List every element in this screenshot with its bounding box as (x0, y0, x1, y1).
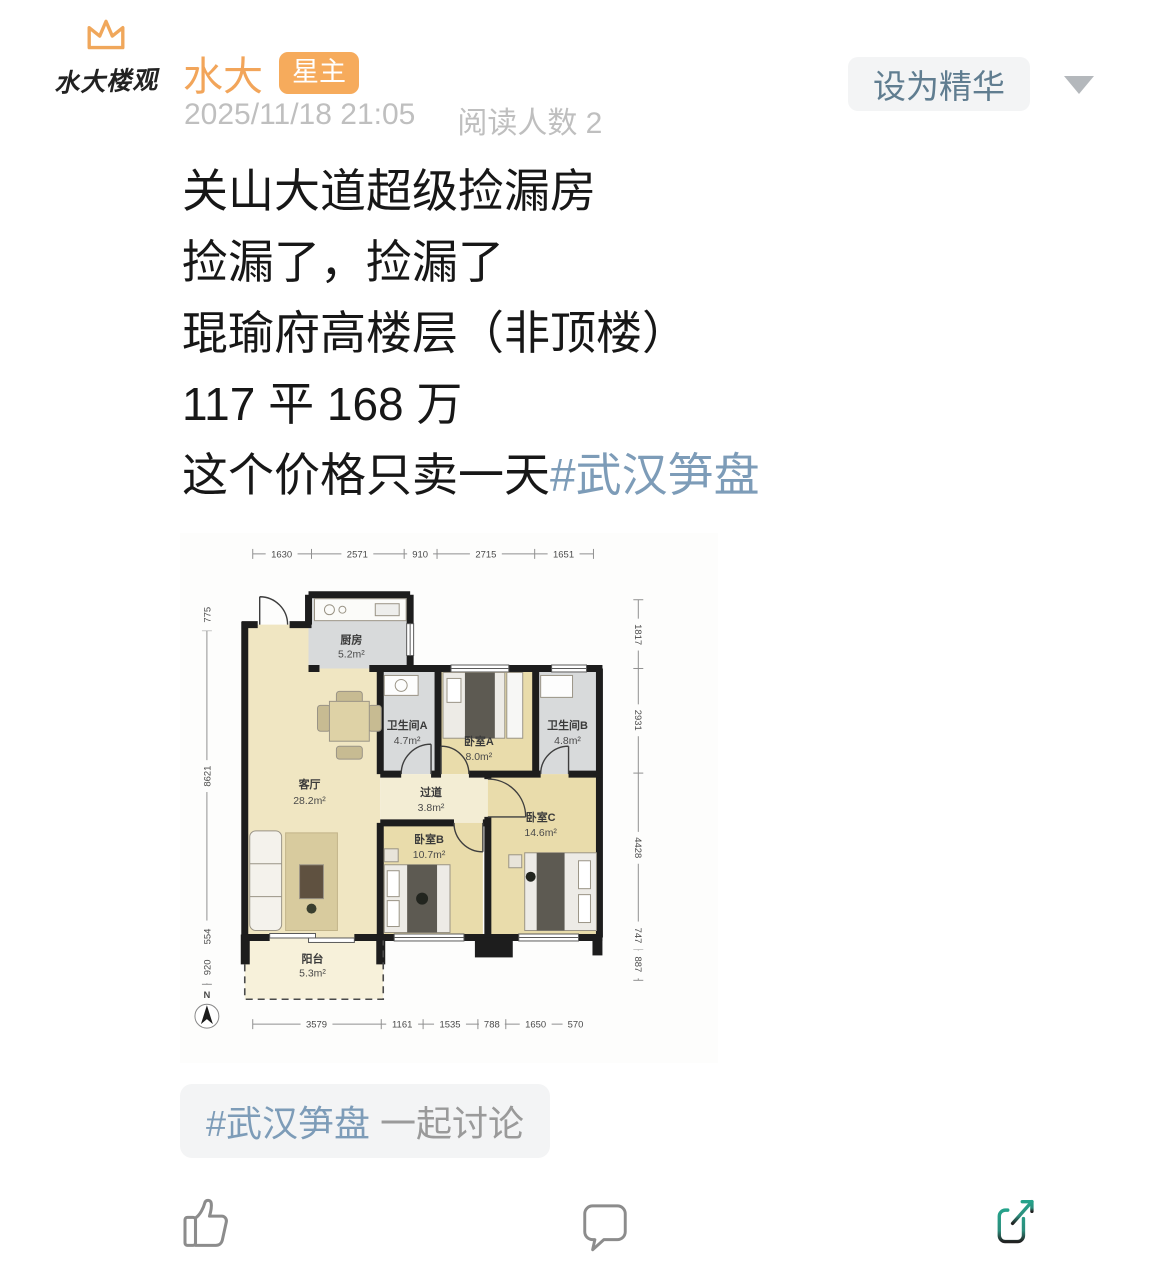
room-area-living: 28.2m² (293, 796, 326, 807)
author-badge: 星主 (279, 52, 359, 94)
share-arrow-icon (986, 1192, 1044, 1250)
dim-left-0: 775 (202, 607, 213, 623)
author-name[interactable]: 水大 (183, 44, 263, 102)
dim-bottom-0: 3579 (306, 1020, 327, 1031)
hashtag-discuss-pill[interactable]: #武汉笋盘 一起讨论 (180, 1084, 550, 1158)
dim-bottom-5: 570 (568, 1020, 584, 1031)
chevron-down-icon[interactable] (1064, 76, 1094, 94)
pill-hashtag[interactable]: #武汉笋盘 (206, 1095, 370, 1147)
room-area-balcony: 5.3m² (299, 968, 326, 979)
dim-right-2: 4428 (632, 837, 643, 858)
post-line-text: 这个价格只卖一天 (182, 449, 550, 501)
avatar[interactable]: 水大楼观 (50, 14, 162, 122)
set-featured-button[interactable]: 设为精华 (848, 57, 1030, 111)
post-line: 琨瑜府高楼层（非顶楼） (182, 298, 1042, 369)
room-label-bath-a: 卫生间A (387, 718, 428, 732)
dim-bottom-3: 788 (484, 1020, 500, 1031)
dim-right-4: 887 (632, 956, 643, 972)
share-button[interactable] (986, 1192, 1044, 1253)
read-count: 阅读人数 2 (457, 98, 602, 142)
room-area-bed-a: 8.0m² (466, 752, 493, 763)
floorplan-svg: 厨房 5.2m² 卫生间A 4.7m² 卧室A 8.0m² 卫生间B 4.8m²… (180, 533, 718, 1063)
post-line: 117 平 168 万 (182, 369, 1042, 440)
like-button[interactable] (178, 1194, 234, 1253)
dim-top-3: 2715 (475, 549, 496, 560)
room-area-bed-b: 10.7m² (413, 850, 446, 861)
room-area-bath-b: 4.8m² (554, 736, 581, 747)
room-area-corridor: 3.8m² (418, 803, 445, 814)
dim-bottom-4: 1650 (525, 1020, 546, 1031)
post-hashtag-link[interactable]: #武汉笋盘 (550, 449, 760, 501)
room-area-bed-c: 14.6m² (524, 828, 557, 839)
room-label-bed-c: 卧室C (526, 810, 556, 824)
room-area-bath-a: 4.7m² (394, 736, 421, 747)
post-line: 关山大道超级捡漏房 (182, 156, 1042, 227)
room-label-corridor: 过道 (420, 785, 442, 799)
pill-suffix: 一起讨论 (370, 1095, 524, 1147)
comment-button[interactable] (578, 1198, 632, 1255)
room-area-kitchen: 5.2m² (338, 650, 365, 661)
room-label-balcony: 阳台 (302, 951, 324, 965)
dim-top-0: 1630 (271, 549, 292, 560)
room-label-bed-b: 卧室B (414, 832, 444, 846)
north-label: N (203, 990, 210, 1001)
post-meta: 2025/11/18 21:05 阅读人数 2 (184, 98, 602, 142)
comment-bubble-icon (578, 1198, 632, 1252)
dim-left-1: 8621 (202, 766, 213, 787)
dim-bottom-1: 1161 (392, 1020, 412, 1031)
timestamp: 2025/11/18 21:05 (184, 98, 415, 142)
dim-left-2: 554 (202, 929, 213, 945)
dim-right-0: 1817 (632, 624, 643, 645)
dim-right-3: 747 (632, 928, 643, 944)
post-page: 水大楼观 水大 星主 2025/11/18 21:05 阅读人数 2 设为精华 … (0, 0, 1170, 1288)
post-body: 关山大道超级捡漏房 捡漏了，捡漏了 琨瑜府高楼层（非顶楼） 117 平 168 … (182, 156, 1042, 511)
dim-top-1: 2571 (347, 549, 368, 560)
thumbs-up-icon (178, 1194, 234, 1250)
floorplan-image[interactable]: 厨房 5.2m² 卫生间A 4.7m² 卧室A 8.0m² 卫生间B 4.8m²… (180, 533, 718, 1063)
room-label-bath-b: 卫生间B (547, 718, 588, 732)
dim-top-4: 1651 (553, 549, 574, 560)
north-compass-icon: N (195, 990, 219, 1028)
room-label-bed-a: 卧室A (464, 734, 494, 748)
dim-right-1: 2931 (632, 710, 643, 731)
crown-icon (80, 14, 132, 56)
dim-left-3: 920 (202, 959, 213, 975)
post-line: 捡漏了，捡漏了 (182, 227, 1042, 298)
room-label-kitchen: 厨房 (340, 633, 362, 647)
dim-bottom-2: 1535 (439, 1020, 460, 1031)
dim-top-2: 910 (412, 549, 428, 560)
room-label-living: 客厅 (298, 777, 321, 791)
avatar-caption: 水大楼观 (49, 60, 162, 100)
author-row: 水大 星主 (183, 44, 359, 102)
post-line: 这个价格只卖一天#武汉笋盘 (182, 440, 1042, 511)
